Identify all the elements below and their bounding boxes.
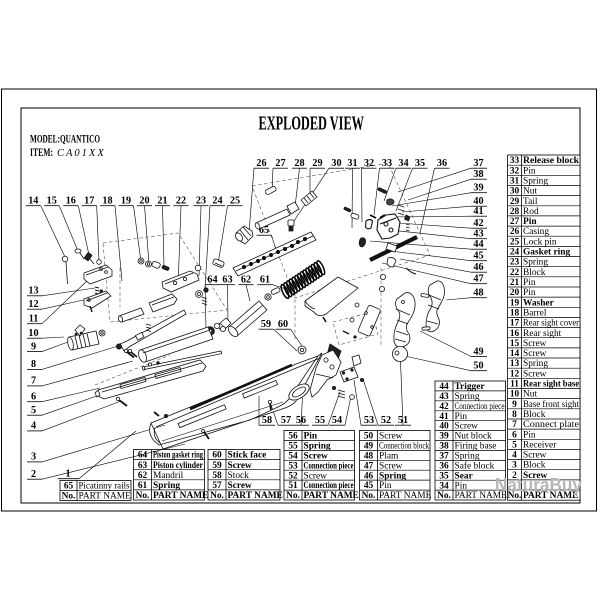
svg-text:46: 46	[364, 471, 374, 481]
svg-text:50: 50	[364, 432, 374, 442]
svg-text:No.: No.	[62, 492, 76, 502]
svg-text:Trigger: Trigger	[455, 382, 485, 392]
svg-text:Rod: Rod	[523, 207, 539, 217]
svg-text:41: 41	[439, 412, 449, 422]
svg-text:25: 25	[230, 196, 240, 207]
svg-text:33: 33	[510, 156, 520, 166]
svg-text:64: 64	[207, 275, 217, 286]
svg-text:43: 43	[473, 229, 483, 240]
svg-text:Rear sight cover: Rear sight cover	[523, 319, 580, 329]
svg-text:57: 57	[212, 481, 222, 491]
svg-text:57: 57	[281, 415, 291, 426]
svg-text:56: 56	[288, 432, 298, 442]
svg-text:Screw: Screw	[379, 461, 403, 471]
svg-text:NaturaBuy: NaturaBuy	[495, 474, 583, 495]
svg-text:54: 54	[332, 415, 342, 426]
svg-text:13: 13	[510, 359, 520, 369]
svg-text:Lock pin: Lock pin	[523, 237, 557, 247]
svg-text:34: 34	[439, 481, 449, 491]
svg-text:5: 5	[31, 405, 36, 416]
svg-text:26: 26	[256, 158, 266, 169]
svg-text:21: 21	[157, 196, 167, 207]
svg-text:No.: No.	[286, 491, 300, 501]
svg-text:18: 18	[510, 309, 520, 319]
svg-text:Pin: Pin	[523, 430, 536, 440]
svg-text:1: 1	[65, 469, 70, 480]
svg-text:53: 53	[288, 461, 298, 471]
svg-text:16: 16	[510, 329, 520, 339]
svg-text:34: 34	[398, 158, 408, 169]
svg-text:35: 35	[439, 471, 449, 481]
svg-text:44: 44	[439, 382, 449, 392]
svg-text:11: 11	[29, 314, 39, 325]
svg-text:16: 16	[66, 196, 76, 207]
svg-text:35: 35	[415, 158, 425, 169]
svg-text:Connection piece: Connection piece	[304, 461, 354, 471]
svg-text:30: 30	[331, 158, 341, 169]
svg-text:Spring: Spring	[523, 177, 548, 187]
svg-text:Block: Block	[523, 461, 546, 471]
svg-text:Rear sight: Rear sight	[523, 329, 562, 339]
svg-text:41: 41	[473, 206, 483, 217]
svg-text:29: 29	[510, 197, 520, 207]
svg-text:48: 48	[364, 451, 374, 461]
svg-text:CA01XX: CA01XX	[57, 148, 106, 159]
svg-text:4: 4	[31, 421, 36, 432]
svg-text:58: 58	[262, 415, 272, 426]
svg-text:47: 47	[364, 461, 374, 471]
svg-text:Stock: Stock	[228, 471, 250, 481]
svg-text:Nut: Nut	[523, 390, 537, 400]
svg-text:15: 15	[510, 339, 520, 349]
svg-text:46: 46	[473, 262, 483, 273]
svg-text:23: 23	[510, 258, 520, 268]
svg-text:38: 38	[473, 169, 483, 180]
svg-text:32: 32	[364, 158, 374, 169]
svg-text:Piston gasket ring: Piston gasket ring	[153, 451, 203, 461]
svg-text:Pin: Pin	[523, 166, 536, 176]
svg-text:PART NAME: PART NAME	[153, 491, 208, 501]
svg-text:Connection piece: Connection piece	[304, 481, 354, 491]
svg-text:18: 18	[102, 196, 112, 207]
svg-text:10: 10	[510, 390, 520, 400]
svg-text:Release block: Release block	[523, 156, 580, 166]
svg-text:2: 2	[31, 469, 36, 480]
svg-text:Spring: Spring	[523, 258, 548, 268]
svg-text:36: 36	[437, 158, 447, 169]
svg-text:17: 17	[84, 196, 94, 207]
svg-text:17: 17	[510, 319, 520, 329]
svg-text:22: 22	[176, 196, 186, 207]
svg-text:Screw: Screw	[455, 422, 479, 432]
svg-text:13: 13	[28, 286, 38, 297]
svg-text:11: 11	[510, 380, 519, 390]
svg-text:Spring: Spring	[304, 442, 331, 452]
svg-text:Tail: Tail	[523, 197, 538, 207]
svg-text:Pin: Pin	[455, 412, 468, 422]
svg-text:19: 19	[121, 196, 131, 207]
svg-text:55: 55	[288, 442, 298, 452]
svg-text:21: 21	[510, 278, 520, 288]
svg-text:Spring: Spring	[455, 392, 480, 402]
svg-text:EXPLODED VIEW: EXPLODED VIEW	[259, 113, 365, 135]
svg-text:59: 59	[212, 461, 222, 471]
svg-text:36: 36	[439, 461, 449, 471]
svg-text:32: 32	[510, 166, 520, 176]
svg-text:Piston cylinder: Piston cylinder	[153, 461, 203, 471]
svg-text:PART NAME: PART NAME	[304, 491, 359, 501]
svg-text:62: 62	[241, 275, 251, 286]
svg-text:Spring: Spring	[523, 359, 548, 369]
svg-text:27: 27	[510, 217, 520, 227]
svg-text:52: 52	[288, 471, 298, 481]
svg-text:61: 61	[260, 275, 270, 286]
svg-text:61: 61	[138, 481, 148, 491]
svg-text:Nut block: Nut block	[455, 432, 493, 442]
svg-text:6: 6	[512, 430, 517, 440]
svg-text:8: 8	[31, 359, 36, 370]
svg-text:33: 33	[382, 158, 392, 169]
svg-text:Spring: Spring	[153, 481, 180, 491]
svg-text:Pin: Pin	[379, 481, 392, 491]
svg-text:Block: Block	[523, 268, 546, 278]
svg-text:39: 39	[439, 432, 449, 442]
svg-text:48: 48	[473, 288, 483, 299]
svg-text:45: 45	[364, 481, 374, 491]
svg-text:30: 30	[510, 187, 520, 197]
svg-text:Receiver: Receiver	[523, 440, 557, 450]
svg-text:No.: No.	[437, 491, 451, 501]
svg-text:Safe block: Safe block	[455, 460, 495, 471]
svg-text:52: 52	[381, 415, 391, 426]
svg-text:64: 64	[138, 451, 148, 461]
svg-text:31: 31	[347, 158, 357, 169]
svg-text:50: 50	[473, 361, 483, 372]
svg-text:63: 63	[222, 275, 232, 286]
svg-text:6: 6	[31, 392, 36, 403]
svg-text:25: 25	[510, 237, 520, 247]
svg-text:Pin: Pin	[523, 217, 537, 227]
svg-text:24: 24	[510, 248, 520, 258]
svg-text:Spring: Spring	[455, 452, 480, 462]
svg-text:Firing base: Firing base	[455, 442, 497, 452]
svg-text:37: 37	[473, 158, 483, 169]
svg-text:MODEL:QUANTICO: MODEL:QUANTICO	[30, 133, 100, 145]
svg-text:65: 65	[64, 482, 74, 492]
svg-text:51: 51	[288, 481, 298, 491]
svg-text:Spring: Spring	[379, 471, 406, 481]
svg-text:Barrel: Barrel	[523, 309, 547, 319]
svg-text:Gasket ring: Gasket ring	[523, 248, 570, 258]
svg-text:Sear: Sear	[455, 471, 473, 481]
svg-text:3: 3	[512, 461, 517, 471]
svg-text:No.: No.	[210, 491, 224, 501]
svg-text:Screw: Screw	[379, 432, 403, 442]
svg-text:Pin: Pin	[523, 288, 536, 298]
svg-text:5: 5	[512, 440, 517, 450]
svg-text:40: 40	[439, 422, 449, 432]
svg-text:Connection block: Connection block	[379, 442, 429, 452]
svg-text:7: 7	[31, 376, 36, 387]
svg-text:31: 31	[510, 177, 520, 187]
svg-text:Block: Block	[523, 410, 546, 420]
svg-text:Screw: Screw	[228, 481, 253, 491]
svg-text:26: 26	[510, 227, 520, 237]
svg-text:10: 10	[28, 328, 38, 339]
svg-text:20: 20	[139, 196, 149, 207]
svg-text:22: 22	[510, 268, 520, 278]
svg-text:53: 53	[364, 415, 374, 426]
svg-text:Washer: Washer	[523, 298, 554, 308]
svg-text:No.: No.	[362, 491, 376, 501]
svg-text:7: 7	[512, 420, 517, 430]
svg-text:62: 62	[138, 471, 148, 481]
svg-text:20: 20	[510, 288, 520, 298]
svg-text:23: 23	[196, 196, 206, 207]
svg-text:14: 14	[510, 349, 520, 359]
svg-text:Picatinny rails: Picatinny rails	[79, 482, 130, 492]
svg-text:4: 4	[512, 451, 517, 461]
svg-text:PART NAME: PART NAME	[228, 491, 283, 501]
svg-text:No.: No.	[136, 491, 150, 501]
svg-text:24: 24	[212, 196, 222, 207]
svg-text:Plam: Plam	[379, 451, 399, 461]
svg-text:12: 12	[510, 369, 520, 379]
svg-text:28: 28	[294, 158, 304, 169]
svg-text:Screw: Screw	[523, 349, 547, 359]
svg-text:Screw: Screw	[523, 369, 547, 379]
svg-text:44: 44	[473, 239, 483, 250]
svg-text:19: 19	[510, 298, 520, 308]
svg-text:Screw: Screw	[523, 339, 547, 349]
svg-text:9: 9	[31, 341, 36, 352]
svg-text:42: 42	[473, 218, 483, 229]
svg-text:Mandril: Mandril	[153, 471, 184, 481]
svg-text:Pin: Pin	[455, 481, 468, 491]
svg-text:39: 39	[473, 183, 483, 194]
svg-text:Screw: Screw	[304, 451, 329, 461]
svg-text:38: 38	[439, 442, 449, 452]
svg-text:37: 37	[439, 452, 449, 462]
svg-text:Pin: Pin	[304, 432, 318, 442]
svg-text:PART NAME: PART NAME	[79, 492, 132, 502]
svg-text:28: 28	[510, 207, 520, 217]
svg-text:Connect plate: Connect plate	[523, 420, 579, 430]
svg-text:49: 49	[364, 442, 374, 452]
svg-text:Stick face: Stick face	[228, 451, 267, 461]
svg-text:14: 14	[28, 196, 38, 207]
svg-text:49: 49	[473, 346, 483, 357]
svg-text:Screw: Screw	[523, 451, 547, 461]
svg-text:54: 54	[288, 451, 298, 461]
svg-text:12: 12	[28, 299, 38, 310]
svg-text:55: 55	[315, 415, 325, 426]
svg-text:Connection piece: Connection piece	[455, 402, 505, 412]
svg-text:ITEM:: ITEM:	[30, 145, 53, 159]
svg-text:15: 15	[47, 196, 57, 207]
svg-text:Casing: Casing	[523, 227, 549, 237]
svg-text:Screw: Screw	[304, 471, 328, 481]
svg-text:59: 59	[261, 319, 271, 330]
svg-text:Base front sight: Base front sight	[523, 399, 579, 410]
svg-text:Nut: Nut	[523, 187, 537, 197]
svg-text:29: 29	[312, 158, 322, 169]
svg-text:Screw: Screw	[228, 461, 253, 471]
svg-text:60: 60	[278, 319, 288, 330]
svg-text:60: 60	[212, 451, 222, 461]
svg-text:3: 3	[31, 452, 36, 463]
svg-text:9: 9	[512, 400, 517, 410]
svg-text:Pin: Pin	[523, 278, 536, 288]
svg-text:45: 45	[473, 251, 483, 262]
svg-text:27: 27	[275, 158, 285, 169]
svg-text:PART NAME: PART NAME	[379, 491, 432, 501]
svg-text:8: 8	[512, 410, 517, 420]
svg-text:42: 42	[439, 402, 449, 412]
svg-text:58: 58	[212, 471, 222, 481]
svg-text:43: 43	[439, 392, 449, 402]
svg-text:Rear sight base: Rear sight base	[523, 380, 579, 390]
svg-text:47: 47	[473, 274, 483, 285]
svg-text:63: 63	[138, 461, 148, 471]
